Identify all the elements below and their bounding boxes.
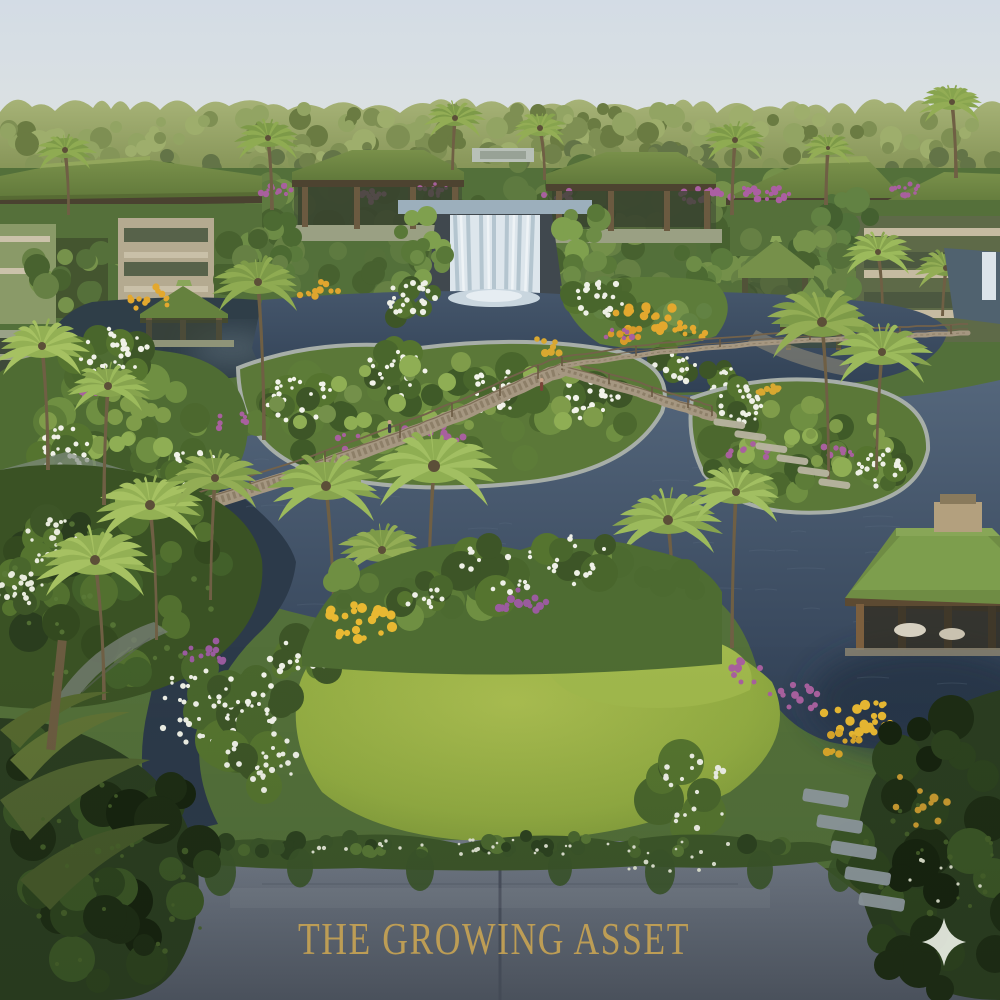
svg-text:THE GROWING ASSET: THE GROWING ASSET — [298, 913, 690, 964]
